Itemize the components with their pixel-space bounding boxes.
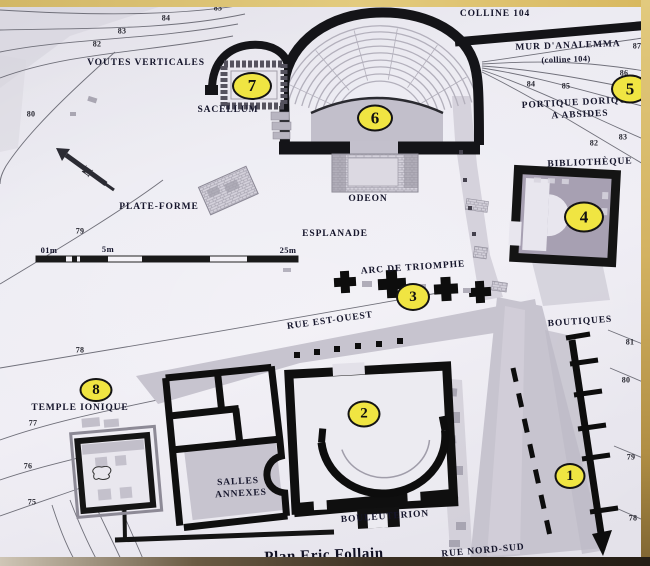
marker-3-arc-de-triomphe: 3: [396, 283, 430, 311]
stage-gap: [350, 141, 398, 155]
contour-82-topright: 82: [590, 139, 598, 148]
contour-75-left: 75: [28, 498, 36, 507]
label-plate-forme: PLATE-FORME: [119, 202, 198, 212]
marker-4-bibliotheque: 4: [564, 202, 604, 233]
odeon-theatre: [279, 13, 480, 192]
marker-6-odeon: 6: [357, 105, 393, 132]
sign-frame-bottom: [0, 557, 650, 566]
sign-frame-top: [0, 0, 650, 7]
scale-tick-5m: 5m: [102, 244, 114, 254]
temple-ionique-building: [69, 412, 161, 517]
site-map-board: COLLINE 104 MUR D'ANALEMMA (colline 104)…: [0, 0, 650, 566]
scale-tick-25m: 25m: [280, 245, 297, 255]
marker-2-bouleuterion: 2: [348, 401, 381, 428]
contour-87-topright: 87: [633, 42, 641, 51]
contour-81-right: 81: [626, 338, 634, 347]
contour-77-left: 77: [29, 419, 37, 428]
contour-76-left: 76: [24, 462, 32, 471]
contour-80-right: 80: [622, 376, 630, 385]
marker-8-temple-ionique: 8: [80, 378, 113, 402]
sacellum-steps: [271, 112, 291, 139]
bouleuterion-building: [286, 358, 456, 532]
label-voutes-verticales: VOUTES VERTICALES: [87, 58, 205, 68]
marker-7-sacellum: 7: [232, 72, 272, 100]
paper-shading: [0, 0, 180, 152]
label-odeon: ODEON: [348, 194, 387, 204]
contour-84-topleft: 84: [162, 14, 170, 23]
sign-frame-right: [641, 0, 650, 566]
contour-80-left: 80: [27, 110, 35, 119]
contour-78-right: 78: [629, 514, 637, 523]
label-mur-analemma-sub: (colline 104): [541, 53, 591, 65]
contour-83-topright: 83: [619, 133, 627, 142]
contour-85-topright: 85: [562, 82, 570, 91]
contour-78-left: 78: [76, 346, 84, 355]
contour-79-right: 79: [627, 453, 635, 462]
plate-forme-structure: [198, 166, 258, 215]
contour-82-topleft: 82: [93, 40, 101, 49]
contour-83-topleft: 83: [118, 27, 126, 36]
contour-79-left: 79: [76, 227, 84, 236]
scale-tick-0-1m: 01m: [41, 245, 58, 255]
scale-bar: [36, 256, 298, 262]
label-temple-ionique: TEMPLE IONIQUE: [31, 403, 128, 413]
label-colline-104: COLLINE 104: [460, 9, 530, 19]
marker-1-boutiques: 1: [555, 463, 586, 489]
south-boundary-wall: [115, 532, 334, 540]
label-esplanade: ESPLANADE: [302, 229, 368, 239]
stage-building: [332, 154, 418, 192]
site-plan-drawing: [0, 0, 650, 566]
analemma-wall: [455, 25, 650, 42]
contour-84-topright: 84: [527, 80, 535, 89]
label-sacellum: SACELLUM: [197, 105, 258, 115]
